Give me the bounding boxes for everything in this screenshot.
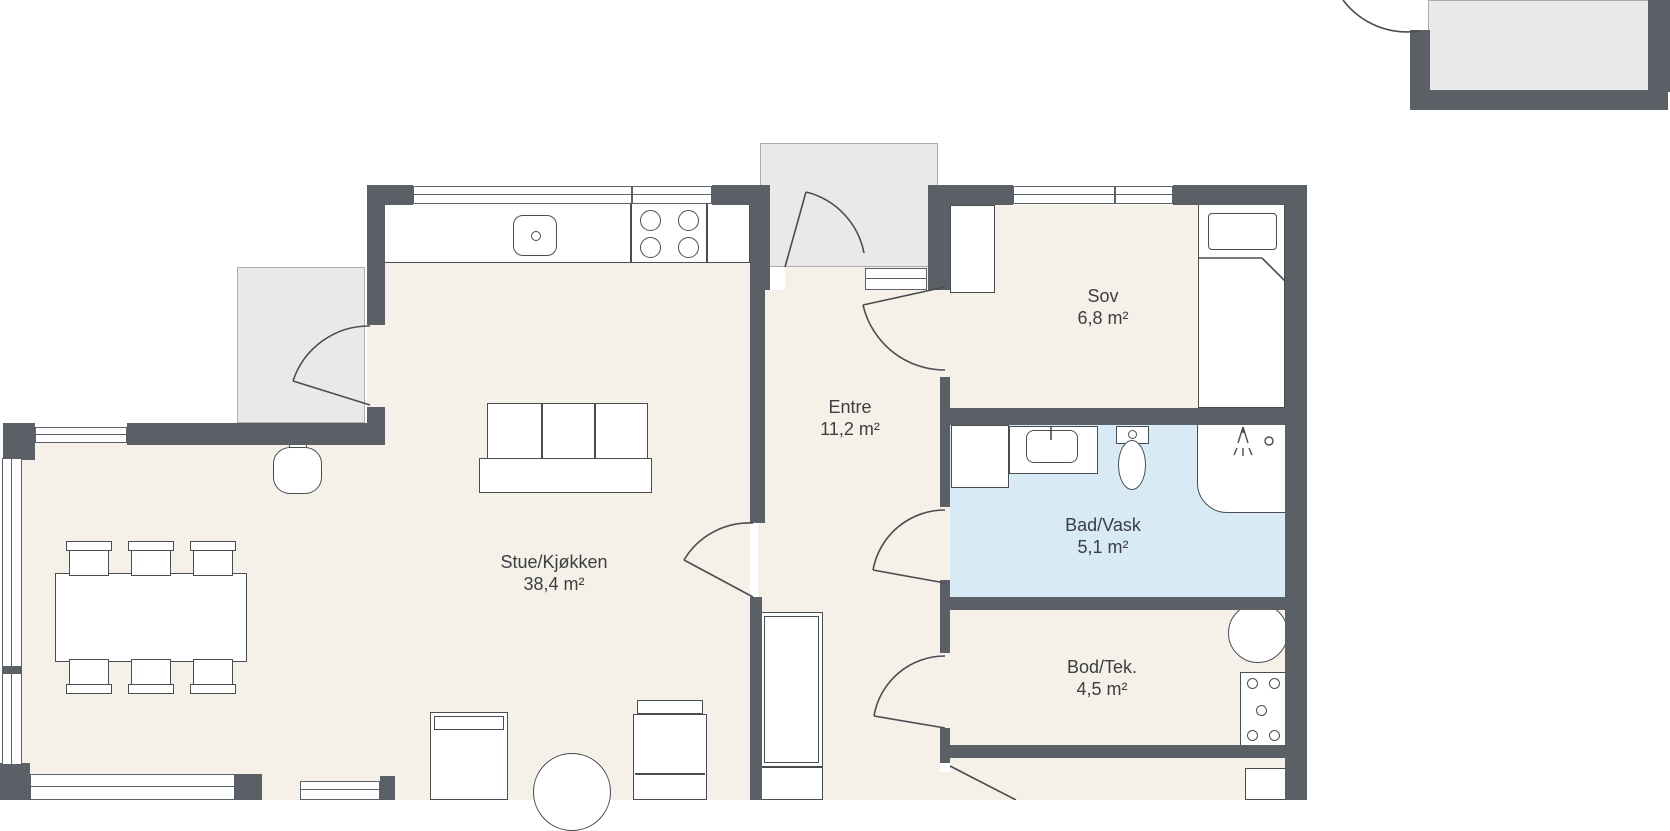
wall-right-outer [1285, 185, 1307, 800]
wall-segment [750, 290, 765, 523]
room-name: Bod/Tek. [1067, 656, 1137, 678]
panel-dot [1269, 678, 1280, 689]
floor-terrace-doorway [367, 325, 385, 407]
room-label-stue-kjokken: Stue/Kjøkken 38,4 m² [500, 551, 607, 595]
room-area: 4,5 m² [1067, 678, 1137, 700]
window-mullion [865, 278, 927, 279]
window-mullion [1013, 194, 1173, 195]
counter-divider [630, 203, 632, 263]
stove-burner [678, 210, 699, 231]
wall-segment [750, 597, 762, 800]
room-area: 11,2 m² [820, 418, 880, 440]
dining-chair [131, 550, 171, 576]
window-divider [631, 186, 633, 204]
window-left-wall [2, 458, 22, 765]
sofa-back-cushions [487, 403, 648, 459]
porch-wall-bottom [1410, 90, 1668, 110]
wall-lamp [273, 447, 322, 494]
armchair-back [637, 700, 703, 714]
dining-chair-back [128, 684, 174, 694]
wall-segment [380, 776, 395, 800]
room-label-bod-tek: Bod/Tek. 4,5 m² [1067, 656, 1137, 700]
stove-burner [678, 237, 699, 258]
wall-corner [3, 423, 35, 460]
sink-drain [531, 231, 541, 241]
entre-wardrobe [760, 767, 823, 800]
floor-plan: Stue/Kjøkken 38,4 m² Entre 11,2 m² Sov 6… [0, 0, 1670, 800]
side-table [533, 753, 611, 831]
detached-porch [1428, 0, 1650, 92]
room-name: Bad/Vask [1065, 514, 1141, 536]
entrance-porch [760, 143, 938, 267]
armchair-seat-line [635, 773, 705, 775]
wall-bod-bottom [940, 745, 1307, 758]
wall-bad-top [940, 408, 1307, 425]
window-mullion [35, 434, 127, 435]
toilet-button [1128, 430, 1137, 439]
door-threshold [770, 267, 785, 290]
bed-pillow [1208, 213, 1277, 250]
door-arc [1343, 0, 1419, 32]
bottom-room-cabinet [1245, 768, 1287, 800]
dining-chair-back [190, 684, 236, 694]
room-label-sov: Sov 6,8 m² [1077, 285, 1128, 329]
room-area: 6,8 m² [1077, 307, 1128, 329]
window-mullion [30, 786, 235, 787]
wall-segment [235, 774, 262, 800]
dining-chair [193, 550, 233, 576]
shower [1197, 420, 1287, 513]
terrace [237, 267, 365, 423]
porch-wall-right [1648, 0, 1670, 92]
dining-chair [193, 659, 233, 685]
window [413, 186, 712, 204]
sofa-cushion-divider [594, 403, 596, 459]
dining-chair [69, 659, 109, 685]
window-mullion [11, 458, 12, 765]
dining-table [55, 573, 247, 662]
toilet-bowl [1118, 440, 1146, 490]
window [30, 774, 235, 800]
sofa-seat [479, 458, 652, 493]
washing-machine [951, 425, 1009, 488]
room-name: Entre [820, 396, 880, 418]
armchair [633, 714, 707, 800]
room-area: 38,4 m² [500, 573, 607, 595]
wall-segment [127, 423, 385, 445]
room-label-entre: Entre 11,2 m² [820, 396, 880, 440]
window [300, 781, 380, 800]
panel-dot [1256, 705, 1267, 716]
room-area: 5,1 m² [1065, 536, 1141, 558]
sofa-cushion-divider [541, 403, 543, 459]
window [1013, 186, 1173, 204]
wall-corner [0, 763, 30, 800]
entre-wardrobe-inner [764, 616, 819, 763]
dining-chair [131, 659, 171, 685]
panel-dot [1247, 730, 1258, 741]
dining-chair [69, 550, 109, 576]
panel-dot [1247, 678, 1258, 689]
wall-segment [750, 185, 770, 290]
window-mullion [300, 789, 380, 790]
window-sidelight [865, 268, 927, 290]
window [35, 427, 127, 443]
vanity-basin [1026, 430, 1078, 463]
water-heater [1228, 603, 1288, 663]
stove-burner [640, 237, 661, 258]
window-divider [1114, 186, 1116, 204]
panel-dot [1269, 730, 1280, 741]
window-mullion [413, 194, 712, 195]
wall-segment [367, 185, 385, 325]
dining-chair-back [66, 684, 112, 694]
door-jamb [940, 763, 950, 772]
wall-segment [940, 580, 950, 653]
stove-burner [640, 210, 661, 231]
room-label-bad-vask: Bad/Vask 5,1 m² [1065, 514, 1141, 558]
room-name: Stue/Kjøkken [500, 551, 607, 573]
counter-divider [706, 203, 708, 263]
sov-wardrobe [950, 205, 995, 293]
room-name: Sov [1077, 285, 1128, 307]
wall-segment [940, 377, 950, 507]
wall-segment [928, 185, 950, 290]
window-divider [2, 666, 22, 674]
armchair-back [434, 716, 504, 730]
wall-bad-bottom [940, 597, 1307, 610]
